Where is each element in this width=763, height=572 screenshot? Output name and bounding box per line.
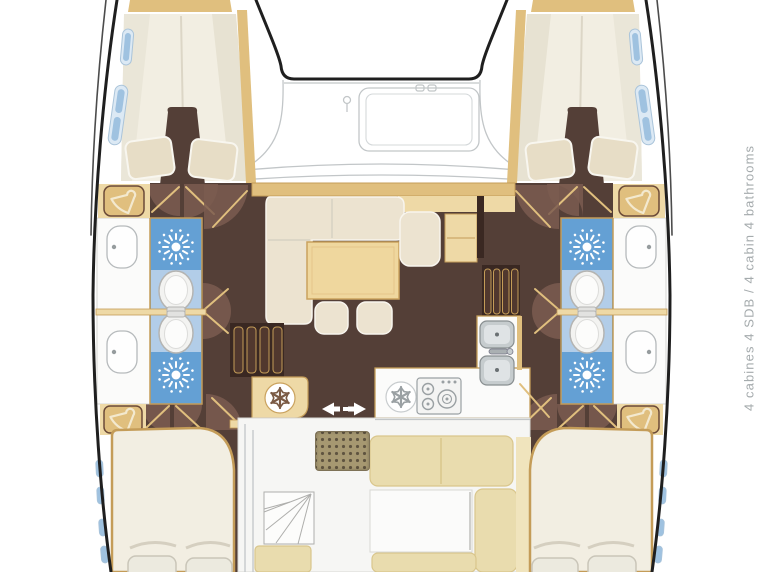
headboard (531, 0, 635, 12)
louvered-locker (482, 265, 520, 318)
bathrooms-port (96, 218, 206, 404)
nav-counter (398, 196, 515, 212)
pillow (525, 138, 575, 181)
bulkhead (96, 309, 206, 315)
wardrobe (98, 184, 150, 218)
stove-burners-icon (417, 378, 461, 414)
forward-cabin-starboard (507, 0, 642, 185)
pillow (588, 556, 636, 572)
wardrobe (613, 184, 665, 218)
saloon-table (307, 242, 399, 299)
cockpit (238, 418, 531, 572)
floor-plan-drawing (0, 0, 763, 572)
foredeck-hatch (359, 88, 479, 151)
partition (477, 196, 484, 258)
cockpit-seat (255, 546, 311, 572)
stool (357, 302, 392, 334)
pillow (188, 138, 238, 181)
pillow (186, 558, 232, 572)
coachroof-outline (256, 0, 507, 79)
aft-cabin-starboard (530, 428, 652, 572)
aft-cabin-port (112, 428, 234, 572)
foredeck (240, 80, 523, 180)
pillow (532, 558, 578, 572)
cockpit-stairs (264, 492, 314, 544)
shower-icon (158, 357, 194, 393)
pillow (125, 136, 176, 180)
pillow (128, 556, 176, 572)
catamaran-floor-plan: 4 cabines 4 SDB / 4 cabin 4 bathrooms (0, 0, 763, 572)
bulkhead (557, 309, 667, 315)
bathrooms-starboard (557, 218, 667, 404)
cockpit-grate (315, 431, 370, 471)
cockpit-table (370, 490, 472, 552)
pillow (588, 136, 639, 180)
forward-cabin-port (121, 0, 256, 185)
aft-bed (112, 428, 234, 572)
plan-side-label: 4 cabines 4 SDB / 4 cabin 4 bathrooms (738, 88, 760, 468)
saloon-sideboard (252, 183, 515, 196)
saloon-seat (400, 212, 440, 266)
deck-cleat (344, 97, 351, 104)
headboard (128, 0, 232, 12)
shower-icon (569, 357, 605, 393)
shower-icon (569, 229, 605, 265)
louvered-locker (230, 323, 284, 377)
stool (315, 302, 348, 334)
shower-icon (158, 229, 194, 265)
aft-bed (530, 428, 652, 572)
